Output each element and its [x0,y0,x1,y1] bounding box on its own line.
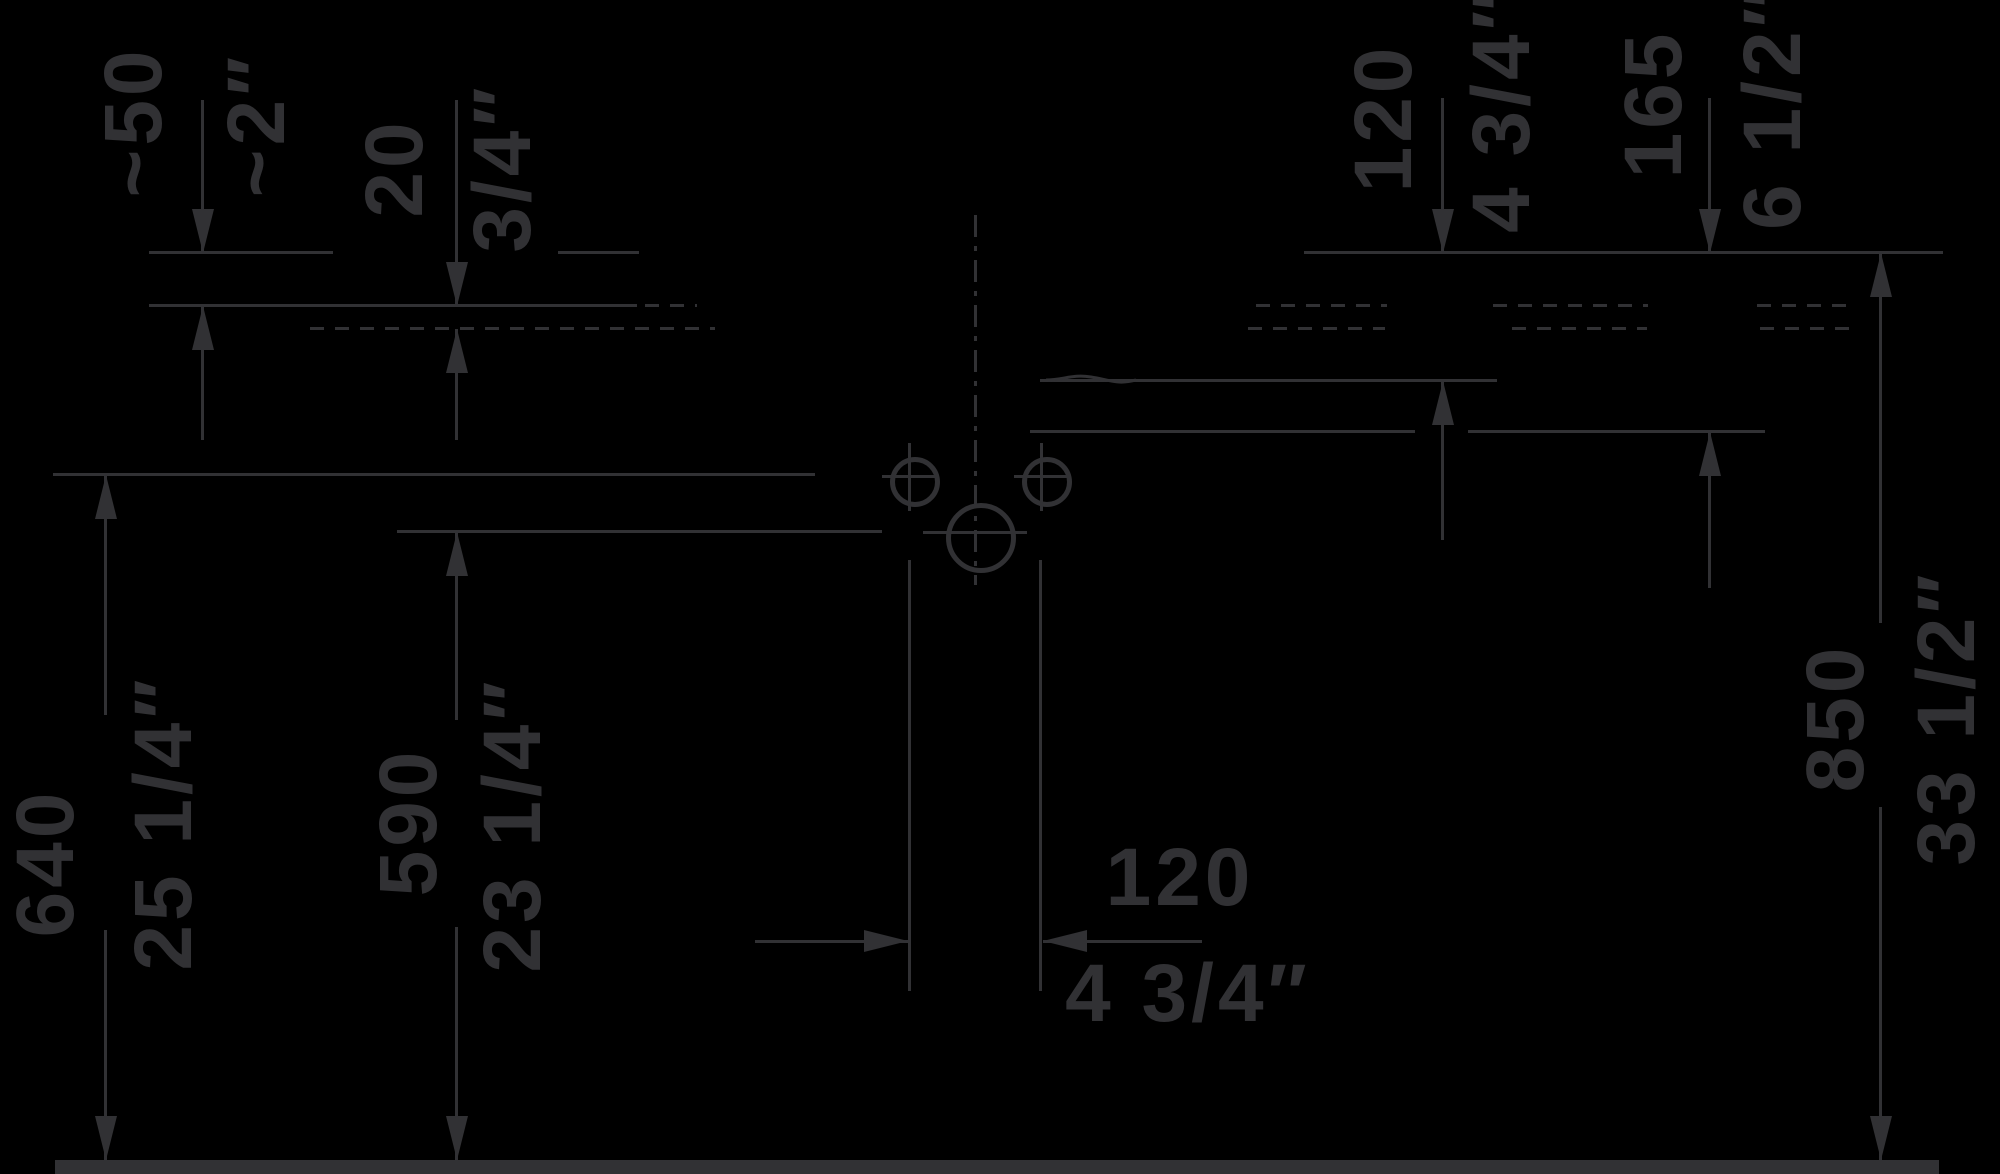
arrowhead-down [1432,209,1454,253]
arrowhead-down [1699,209,1721,253]
dim-640-inch-label: 25 1/4″ [123,675,205,970]
arrowhead-up [192,306,214,350]
dim-640-mm-label: 640 [5,789,87,938]
deck-line-left [53,473,815,476]
arrowhead-down [95,1116,117,1160]
arrowhead-down [446,262,468,306]
drain-circle [946,503,1016,573]
dim-850-stem-lower [1879,807,1882,1160]
dim-850-stem-upper [1879,253,1882,623]
dim-20-mm-label: 20 [354,118,436,217]
arrowhead-right [864,930,908,952]
faucet-hole-left-crosshair-v [908,443,911,511]
basin-line-right-a [1030,430,1415,433]
arrowhead-down [1870,1116,1892,1160]
hidden-line-low-r1 [1248,327,1385,330]
top-edge-line-left-b [558,251,639,254]
arrowhead-up [95,475,117,519]
dim-850-mm-label: 850 [1795,644,1877,793]
arrowhead-up [1432,381,1454,425]
top-edge-line-left-a [149,251,333,254]
break-mark [1046,372,1136,388]
dim-120-top-inch-label: 4 3/4″ [1461,0,1543,233]
trap-line-left [908,560,911,991]
arrowhead-down [192,209,214,253]
hidden-line-mid-left [645,304,697,307]
hidden-line-low-r2 [1512,327,1647,330]
faucet-hole-right-circle [1022,457,1072,507]
trap-line-right [1039,560,1042,991]
hidden-line-mid-r3 [1757,304,1857,307]
dim-165-mm-label: 165 [1613,30,1695,179]
arrowhead-up [1699,432,1721,476]
faucet-hole-left-circle [890,457,940,507]
dim-590-inch-label: 23 1/4″ [472,677,554,972]
hidden-line-mid-r1 [1256,304,1387,307]
dim-120-bottom-inch-label: 4 3/4″ [1065,953,1311,1035]
arrowhead-up [446,329,468,373]
basin-bottom-line-left [397,530,882,533]
drain-crosshair-h [923,531,1027,534]
dim-850-inch-label: 33 1/2″ [1906,570,1988,865]
hidden-line-mid-r2 [1493,304,1648,307]
arrowhead-down [446,1116,468,1160]
faucet-hole-right-crosshair-v [1040,443,1043,511]
hidden-line-low-left [310,327,715,330]
arrowhead-up [1870,253,1892,297]
dim-165-inch-label: 6 1/2″ [1732,0,1814,230]
dim-50-inch-label: ~2″ [216,53,298,198]
dimension-drawing: ~50 ~2″ 20 3/4″ 120 4 3/4″ 165 6 1/2″ 64… [0,0,2000,1174]
arrowhead-up [446,532,468,576]
counter-underside-line [149,304,637,307]
dim-20-inch-label: 3/4″ [462,83,544,252]
hidden-line-low-r3 [1760,327,1857,330]
dim-590-mm-label: 590 [368,748,450,897]
dim-120-top-mm-label: 120 [1343,44,1425,193]
floor-bar [55,1160,1939,1174]
dim-120-bottom-mm-label: 120 [1106,837,1255,919]
top-edge-line-right [1304,251,1943,254]
dim-50-mm-label: ~50 [93,46,175,197]
